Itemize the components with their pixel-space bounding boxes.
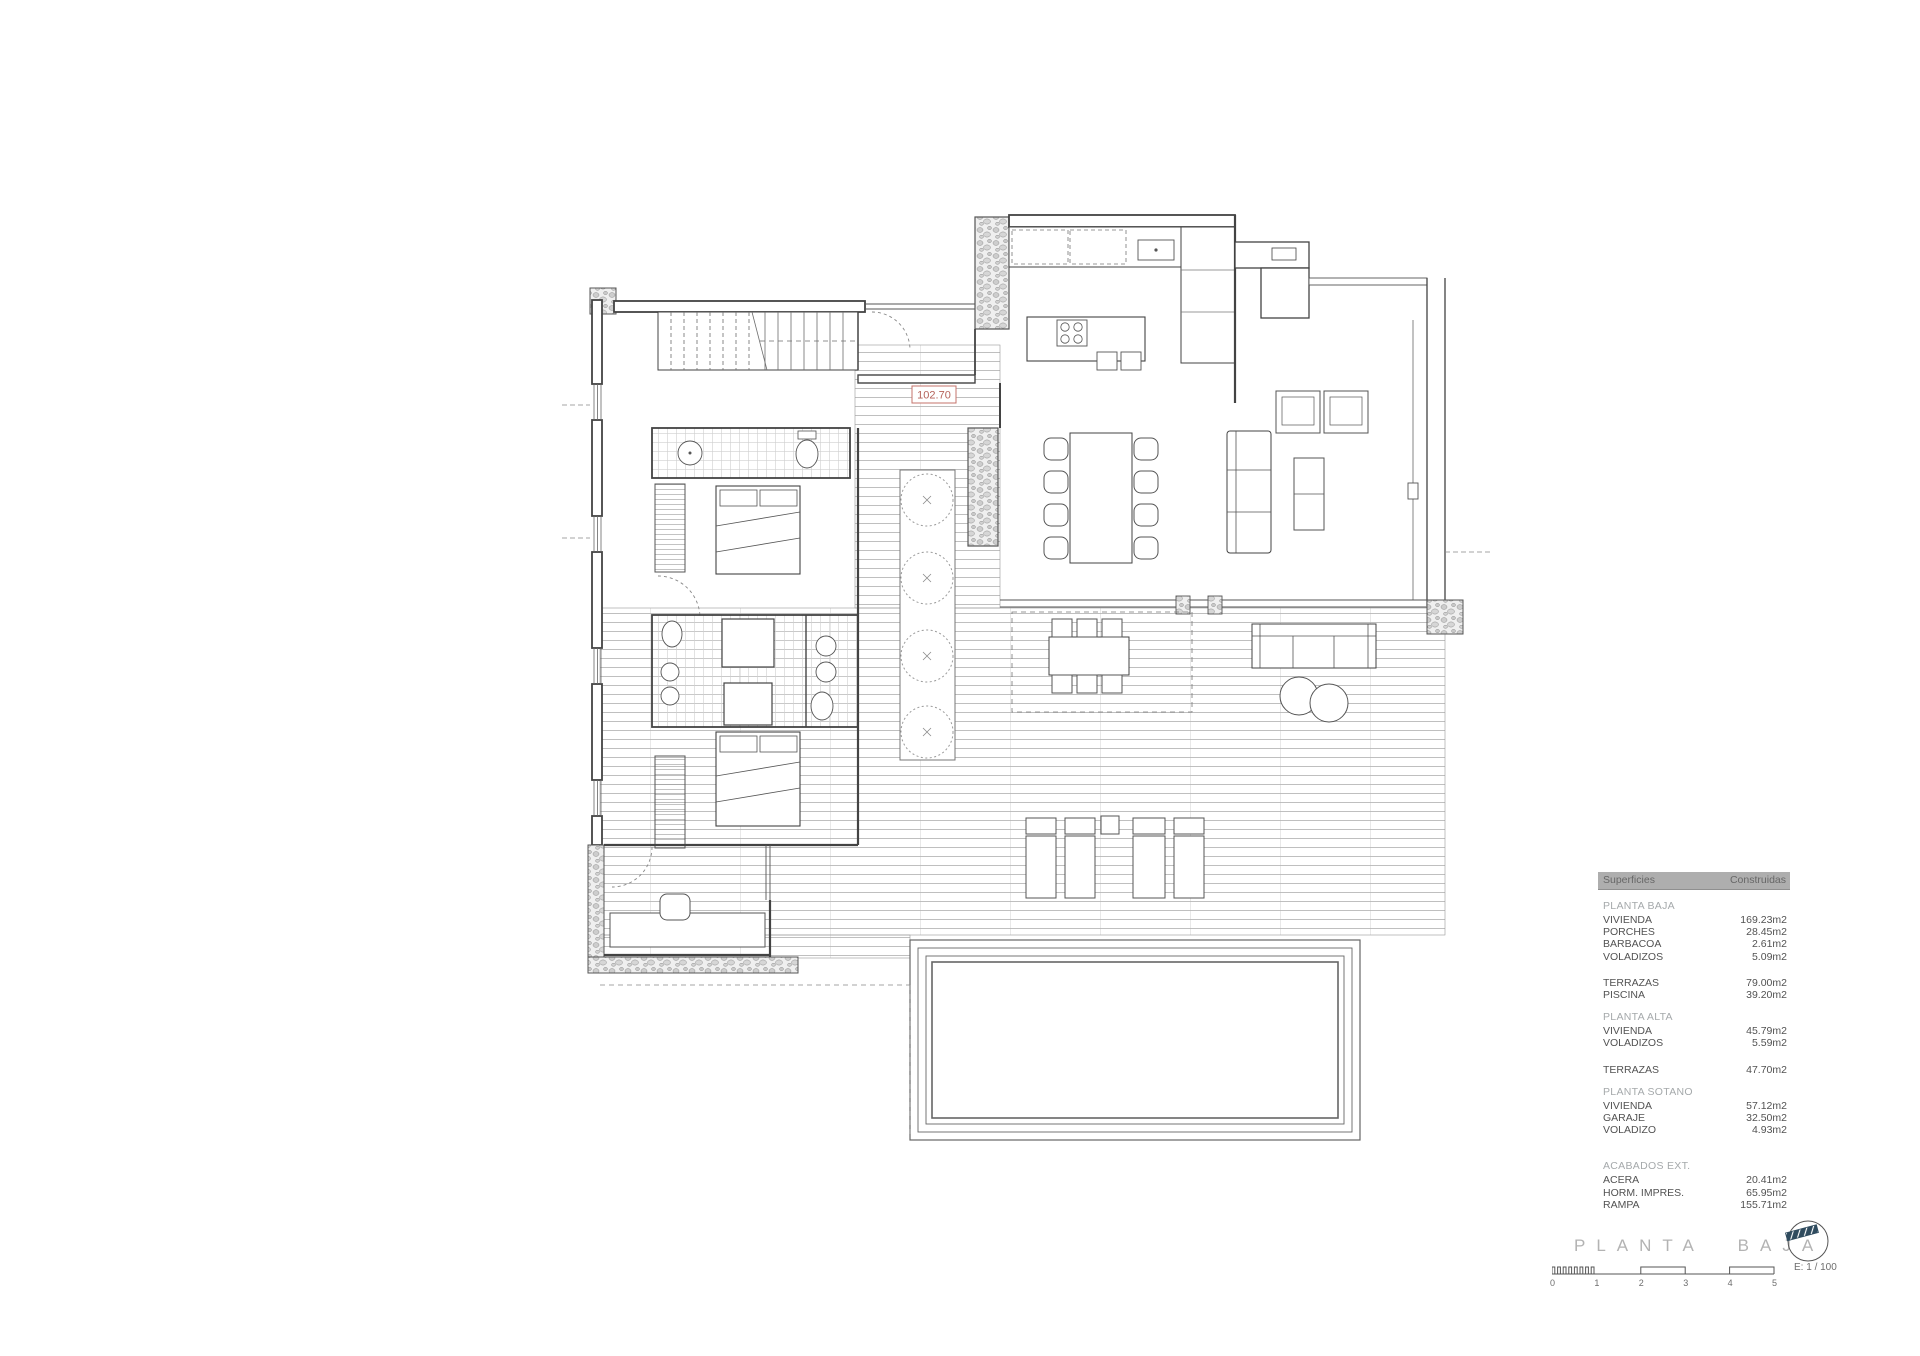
row-value: 5.59m2 [1752, 1037, 1787, 1049]
scale-tick-labels: 012345 [1550, 1278, 1782, 1290]
row-value: 65.95m2 [1746, 1187, 1787, 1199]
table-row: VIVIENDA 57.12m2 [1598, 1100, 1790, 1112]
row-label: BARBACOA [1603, 938, 1661, 950]
row-value: 45.79m2 [1746, 1025, 1787, 1037]
table-row: PISCINA 39.20m2 [1598, 989, 1790, 1001]
row-value: 32.50m2 [1746, 1112, 1787, 1124]
row-label: VIVIENDA [1603, 1025, 1652, 1037]
table-section: TERRAZAS 79.00m2 PISCINA 39.20m2 [1598, 977, 1790, 1001]
row-value: 169.23m2 [1740, 914, 1787, 926]
sink-icon [816, 662, 836, 682]
table-row: PORCHES 28.45m2 [1598, 926, 1790, 938]
sofa-icon [1227, 431, 1271, 553]
floor-plan-drawing: 102.70 [560, 200, 1500, 1170]
outdoor-sofa-icon [1252, 624, 1376, 668]
row-label: TERRAZAS [1603, 1064, 1659, 1076]
stone-wall [975, 217, 1009, 329]
row-label: VIVIENDA [1603, 914, 1652, 926]
level-label: 102.70 [912, 386, 956, 403]
row-label: TERRAZAS [1603, 977, 1659, 989]
table-row: VIVIENDA 169.23m2 [1598, 914, 1790, 926]
table-row: GARAJE 32.50m2 [1598, 1112, 1790, 1124]
outdoor-dining-table [1049, 619, 1129, 693]
row-label: PISCINA [1603, 989, 1645, 1001]
planter-strip [900, 470, 955, 760]
table-section: PLANTA SOTANO VIVIENDA 57.12m2 GARAJE 32… [1598, 1086, 1790, 1137]
row-label: PORCHES [1603, 926, 1655, 938]
stone-wall [968, 428, 998, 546]
sink-icon [816, 636, 836, 656]
shower [724, 683, 772, 725]
stone-wall [588, 957, 798, 973]
table-row: VOLADIZOS 5.09m2 [1598, 951, 1790, 963]
window [865, 304, 975, 309]
section-heading: ACABADOS EXT. [1598, 1160, 1790, 1172]
section-rows: VIVIENDA 57.12m2 GARAJE 32.50m2 VOLADIZO… [1598, 1100, 1790, 1137]
table-row: VOLADIZOS 5.59m2 [1598, 1037, 1790, 1049]
side-table [1101, 816, 1119, 834]
scale-tick: 2 [1639, 1278, 1644, 1288]
table-section: PLANTA BAJA VIVIENDA 169.23m2 PORCHES 28… [1598, 900, 1790, 963]
bathroom-1 [652, 428, 850, 478]
chair-icon [660, 894, 690, 920]
staircase [590, 288, 865, 370]
dining-table [1044, 433, 1158, 563]
table-row: TERRAZAS 47.70m2 [1598, 1064, 1790, 1076]
table-row: BARBACOA 2.61m2 [1598, 938, 1790, 950]
areas-table-header: Superficies Construidas [1598, 872, 1790, 890]
scale-ratio-label: E: 1 / 100 [1794, 1262, 1837, 1273]
table-section: ACABADOS EXT. ACERA 20.41m2 HORM. IMPRES… [1598, 1160, 1790, 1211]
col-superficies: Superficies [1603, 874, 1655, 886]
swimming-pool [910, 940, 1360, 1140]
porch-edge [1309, 278, 1427, 285]
toilet-icon [662, 621, 682, 647]
section-heading: PLANTA ALTA [1598, 1011, 1790, 1023]
row-value: 155.71m2 [1740, 1199, 1787, 1211]
sink-icon [661, 687, 679, 705]
section-heading: PLANTA BAJA [1598, 900, 1790, 912]
kitchen-island [1027, 317, 1145, 370]
areas-table: Superficies Construidas PLANTA BAJA VIVI… [1598, 872, 1790, 1211]
table-row: HORM. IMPRES. 65.95m2 [1598, 1187, 1790, 1199]
pouf-icon [1310, 684, 1348, 722]
scale-tick: 3 [1683, 1278, 1688, 1288]
row-value: 28.45m2 [1746, 926, 1787, 938]
row-value: 5.09m2 [1752, 951, 1787, 963]
scale-bar [1552, 1262, 1792, 1278]
toilet-icon [811, 692, 833, 720]
table-row: TERRAZAS 79.00m2 [1598, 977, 1790, 989]
scale-tick: 4 [1728, 1278, 1733, 1288]
bedroom-1 [655, 484, 800, 618]
kitchen-counter [1181, 227, 1235, 363]
row-label: HORM. IMPRES. [1603, 1187, 1684, 1199]
barbecue [1235, 242, 1309, 318]
stool-icon [1097, 352, 1117, 370]
col-construidas: Construidas [1730, 874, 1786, 886]
kitchen [975, 215, 1427, 403]
row-label: VOLADIZOS [1603, 1037, 1663, 1049]
row-label: VOLADIZO [1603, 1124, 1656, 1136]
bed-icon [716, 486, 800, 574]
section-heading: PLANTA SOTANO [1598, 1086, 1790, 1098]
section-rows: VIVIENDA 169.23m2 PORCHES 28.45m2 BARBAC… [1598, 914, 1790, 963]
stone-pier [1208, 596, 1222, 614]
row-value: 20.41m2 [1746, 1174, 1787, 1186]
section-rows: TERRAZAS 47.70m2 [1598, 1064, 1790, 1076]
wardrobe [655, 484, 685, 572]
toilet-icon [796, 440, 818, 468]
stone-wall [588, 845, 604, 965]
row-value: 47.70m2 [1746, 1064, 1787, 1076]
wardrobe [655, 756, 685, 848]
table-row: RAMPA 155.71m2 [1598, 1199, 1790, 1211]
row-value: 39.20m2 [1746, 989, 1787, 1001]
cooktop-icon [1057, 320, 1087, 346]
door-swing-icon [872, 312, 910, 350]
section-rows: ACERA 20.41m2 HORM. IMPRES. 65.95m2 RAMP… [1598, 1174, 1790, 1211]
section-rows: TERRAZAS 79.00m2 PISCINA 39.20m2 [1598, 977, 1790, 1001]
armchair-icon [1276, 391, 1368, 433]
stool-icon [1121, 352, 1141, 370]
row-value: 2.61m2 [1752, 938, 1787, 950]
table-row: VOLADIZO 4.93m2 [1598, 1124, 1790, 1136]
scale-tick: 0 [1550, 1278, 1555, 1288]
table-row: ACERA 20.41m2 [1598, 1174, 1790, 1186]
coffee-table [1294, 458, 1324, 530]
table-section: TERRAZAS 47.70m2 [1598, 1064, 1790, 1076]
bed-icon [716, 732, 800, 826]
scale-tick: 1 [1594, 1278, 1599, 1288]
plot-boundary-dashed [600, 985, 910, 1138]
table-row: VIVIENDA 45.79m2 [1598, 1025, 1790, 1037]
section-rows: VIVIENDA 45.79m2 VOLADIZOS 5.59m2 [1598, 1025, 1790, 1049]
stone-pier [1176, 596, 1190, 614]
shower [722, 619, 774, 667]
row-label: ACERA [1603, 1174, 1639, 1186]
areas-table-body: PLANTA BAJA VIVIENDA 169.23m2 PORCHES 28… [1598, 900, 1790, 1211]
row-value: 4.93m2 [1752, 1124, 1787, 1136]
table-section: PLANTA ALTA VIVIENDA 45.79m2 VOLADIZOS 5… [1598, 1011, 1790, 1049]
row-value: 79.00m2 [1746, 977, 1787, 989]
row-value: 57.12m2 [1746, 1100, 1787, 1112]
svg-text:102.70: 102.70 [917, 390, 951, 402]
row-label: RAMPA [1603, 1199, 1640, 1211]
row-label: VIVIENDA [1603, 1100, 1652, 1112]
stone-wall [1427, 600, 1463, 634]
row-label: GARAJE [1603, 1112, 1645, 1124]
bathroom-2 [652, 615, 858, 727]
door-handle-icon [1408, 483, 1418, 499]
sink-icon [661, 663, 679, 681]
row-label: VOLADIZOS [1603, 951, 1663, 963]
scale-tick: 5 [1772, 1278, 1777, 1288]
